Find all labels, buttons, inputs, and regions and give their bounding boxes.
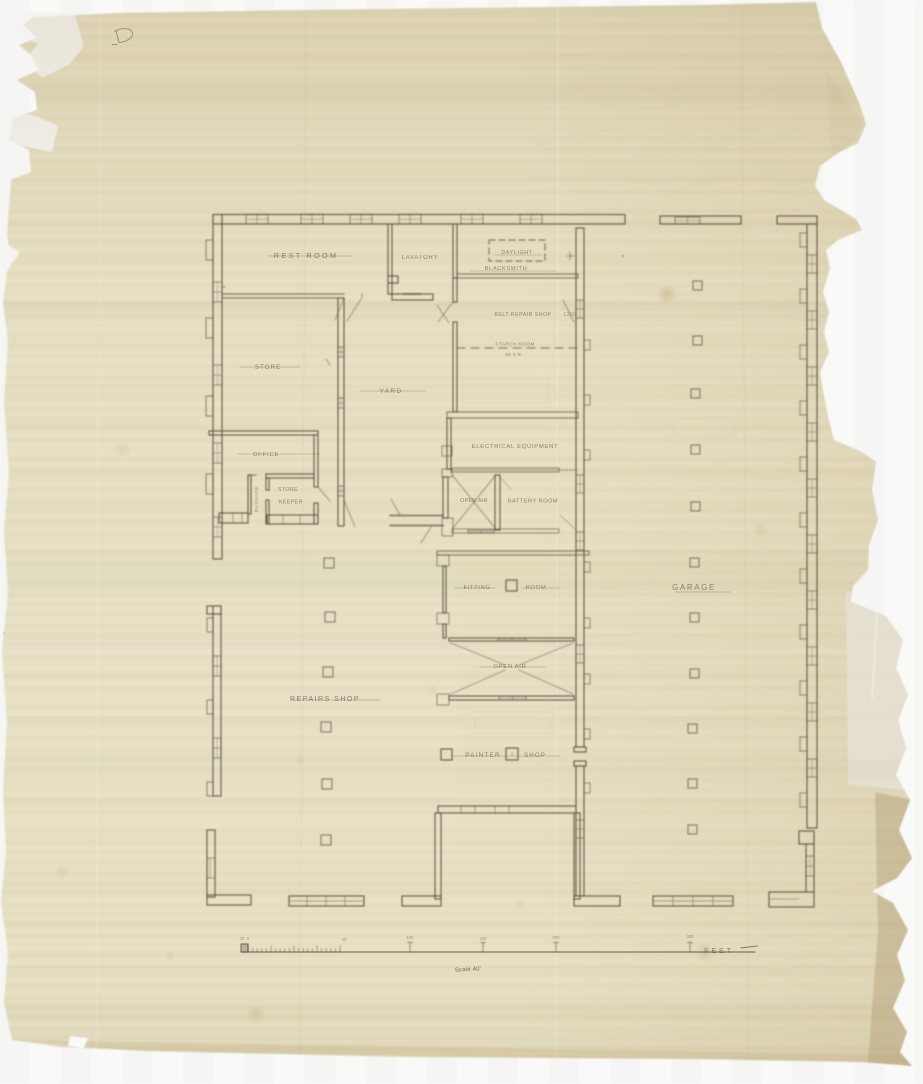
svg-text:OPEN AIR: OPEN AIR xyxy=(460,498,488,504)
svg-text:100: 100 xyxy=(407,935,415,940)
svg-text:ELECTRICAL EQUIPMENT: ELECTRICAL EQUIPMENT xyxy=(472,444,559,450)
svg-text:STARCH ROOM: STARCH ROOM xyxy=(495,342,534,348)
svg-text:STORE: STORE xyxy=(278,487,298,493)
svg-text:SHOP: SHOP xyxy=(524,752,546,759)
svg-text:BATTERY ROOM: BATTERY ROOM xyxy=(508,499,558,505)
svg-text:PAINTER: PAINTER xyxy=(465,752,500,759)
svg-text:Scale 40': Scale 40' xyxy=(455,966,482,973)
svg-text:300: 300 xyxy=(687,934,695,939)
svg-text:STORE: STORE xyxy=(255,364,281,371)
svg-text:LAVATORY: LAVATORY xyxy=(402,255,439,261)
svg-text:20: 20 xyxy=(240,936,245,941)
svg-text:ROOM: ROOM xyxy=(526,585,547,591)
svg-text:YARD: YARD xyxy=(379,388,402,395)
svg-text:BELT REPAIR SHOP: BELT REPAIR SHOP xyxy=(494,312,551,318)
svg-text:FEET: FEET xyxy=(704,946,734,955)
svg-text:REPAIRS SHOP: REPAIRS SHOP xyxy=(290,694,360,703)
svg-text:16 X 6: 16 X 6 xyxy=(505,352,521,358)
svg-text:200: 200 xyxy=(553,935,561,940)
svg-text:40: 40 xyxy=(342,937,347,942)
svg-text:1200: 1200 xyxy=(563,312,576,318)
svg-text:OFFICE: OFFICE xyxy=(253,452,279,458)
svg-text:150: 150 xyxy=(480,936,488,941)
svg-text:0: 0 xyxy=(247,936,250,941)
svg-text:KEEPER: KEEPER xyxy=(279,500,303,506)
svg-text:GARAGE: GARAGE xyxy=(672,583,716,592)
svg-text:REST ROOM: REST ROOM xyxy=(274,251,338,260)
svg-text:PASSAGE: PASSAGE xyxy=(254,486,260,512)
